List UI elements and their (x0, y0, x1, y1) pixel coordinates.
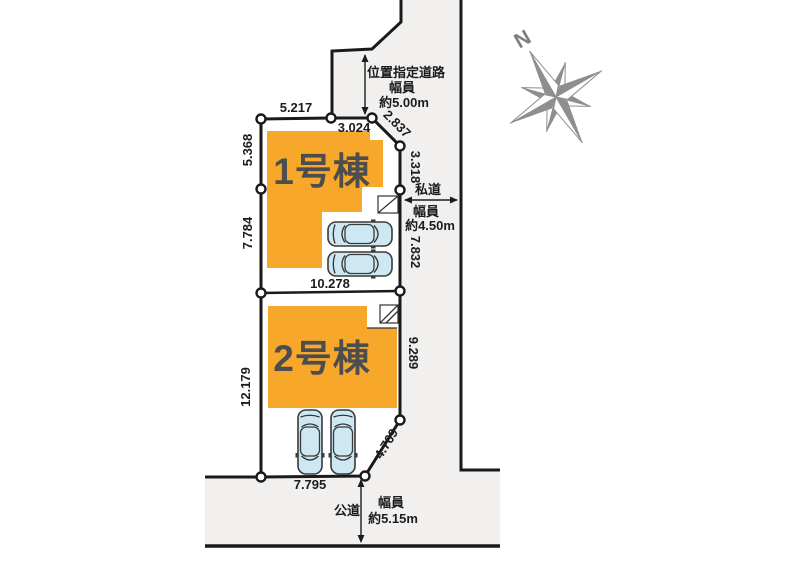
private-road-width-value: 約4.50m (405, 218, 455, 233)
car-icon (296, 410, 325, 474)
building-1-porch (378, 196, 398, 213)
public-road-width-label: 幅員 (378, 495, 404, 510)
dim-plot1-bottom: 10.278 (310, 276, 350, 291)
site-plan-svg: 5.217 3.024 2.837 3.318 5.368 7.784 7.83… (0, 0, 800, 566)
car-icon (328, 250, 392, 279)
building-1-label: 1号棟 (273, 151, 371, 192)
car-icon (328, 220, 392, 249)
dim-plot1-left-upper: 5.368 (240, 134, 255, 167)
private-road-name: 私道 (415, 182, 441, 197)
dim-plot1-right-lower: 7.832 (408, 236, 423, 269)
public-road-name: 公道 (334, 503, 360, 518)
private-road-edge (461, 0, 500, 470)
designated-road-width-value: 約5.00m (379, 95, 429, 110)
dim-plot1-top-left: 5.217 (280, 100, 313, 115)
dim-plot2-bottom: 7.795 (294, 477, 327, 492)
dim-plot2-right: 9.289 (406, 337, 421, 370)
public-road-width-value: 約5.15m (368, 511, 418, 526)
dim-plot1-top-right: 3.024 (338, 120, 371, 135)
dim-plot1-left-lower: 7.784 (240, 216, 255, 249)
car-icon (329, 410, 358, 474)
designated-road-name: 位置指定道路 (367, 65, 446, 80)
dim-plot1-right-upper: 3.318 (408, 151, 423, 184)
dim-plot2-left: 12.179 (238, 367, 253, 407)
site-plan-page: 5.217 3.024 2.837 3.318 5.368 7.784 7.83… (0, 0, 800, 566)
compass-rose: N (471, 3, 628, 169)
designated-road-width-label: 幅員 (389, 80, 415, 95)
private-road-width-label: 幅員 (413, 204, 439, 219)
compass-long-points (484, 25, 629, 170)
north-label: N (510, 26, 535, 54)
building-2-label: 2号棟 (273, 338, 371, 379)
